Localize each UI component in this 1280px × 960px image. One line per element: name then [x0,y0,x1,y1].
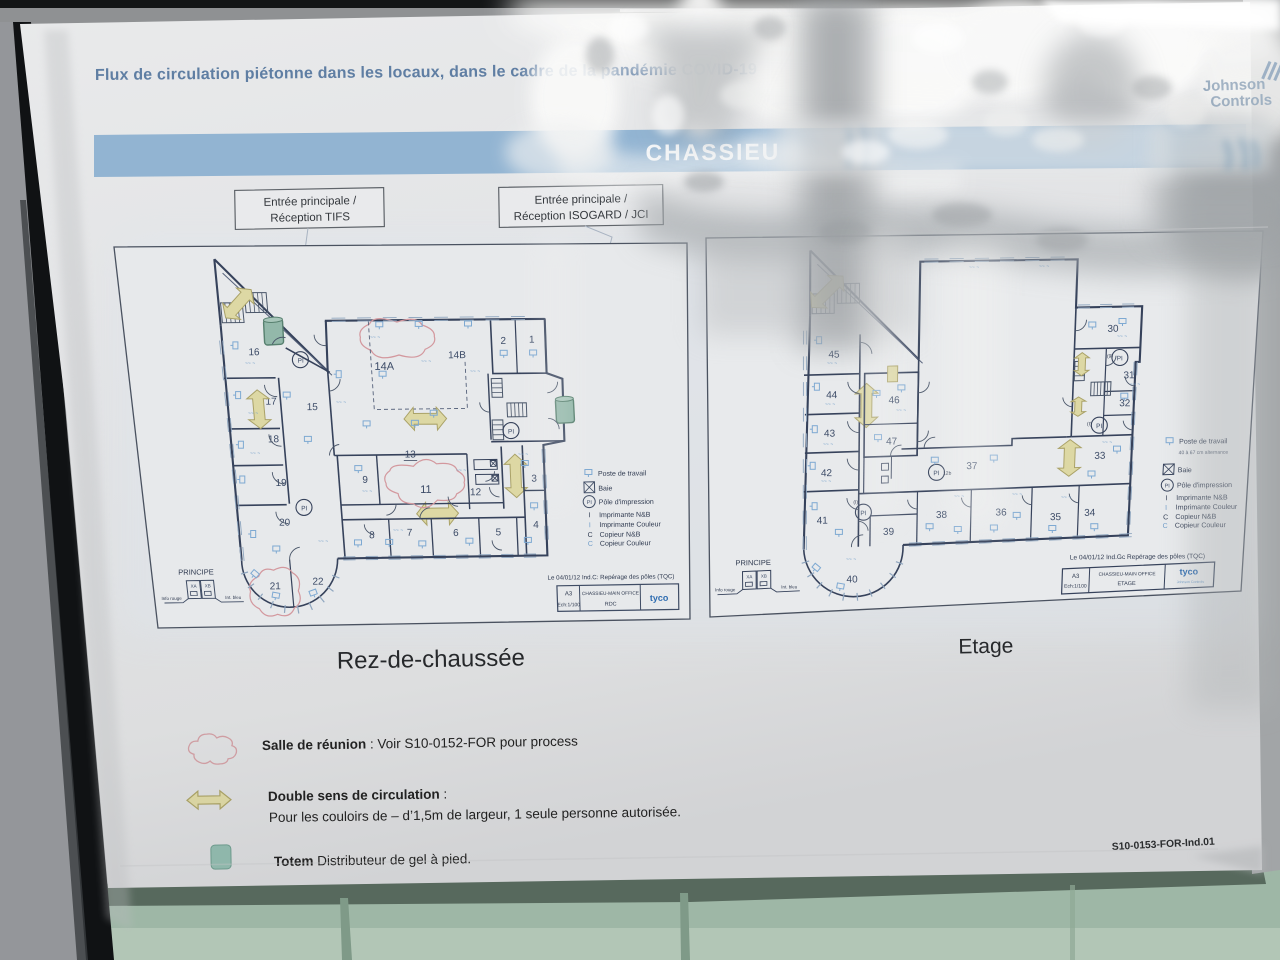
svg-text:1: 1 [529,335,535,346]
svg-text:6: 6 [453,528,459,539]
svg-text:Rez-de-chaussée: Rez-de-chaussée [337,644,526,674]
svg-text:PI: PI [587,500,593,506]
svg-text:33: 33 [1094,451,1106,462]
svg-text:C: C [1163,514,1168,521]
svg-text:PI: PI [1117,355,1123,362]
svg-text:PI: PI [298,358,304,365]
svg-text:C: C [588,532,593,539]
svg-text:~~ ~: ~~ ~ [846,557,856,563]
svg-text:~~ ~: ~~ ~ [370,335,380,341]
svg-text:~~ ~: ~~ ~ [336,400,346,406]
svg-text:21: 21 [270,581,282,592]
svg-text:Ech:1/100: Ech:1/100 [557,602,580,608]
svg-text:7: 7 [407,528,413,539]
svg-text:3: 3 [531,474,537,485]
svg-text:8: 8 [369,530,375,541]
svg-text:Réception ISOGARD / JCI: Réception ISOGARD / JCI [514,209,649,223]
svg-text:PI: PI [1096,423,1102,430]
svg-text:Copieur Couleur: Copieur Couleur [600,540,652,548]
svg-text:CHASSIEU-MAIN OFFICE: CHASSIEU-MAIN OFFICE [1099,571,1156,578]
svg-text:35: 35 [1050,512,1062,523]
svg-text:I: I [1165,505,1167,512]
svg-text:~~ ~: ~~ ~ [1012,492,1022,498]
svg-text:(I): (I) [1087,421,1092,427]
svg-text:~~ ~: ~~ ~ [827,361,837,367]
svg-text:Info rouge: Info rouge [161,596,182,601]
svg-text:Imprimante Couleur: Imprimante Couleur [599,521,661,529]
svg-text:43: 43 [824,429,836,440]
svg-text:45: 45 [828,350,840,361]
svg-text:C: C [1163,523,1168,530]
svg-text:I: I [589,512,591,519]
svg-text:~~ ~: ~~ ~ [825,402,835,408]
svg-text:Copieur N&B: Copieur N&B [600,531,641,538]
svg-text:44: 44 [826,390,838,401]
svg-text:15: 15 [307,402,319,413]
svg-text:PI: PI [933,470,939,477]
svg-text:(I): (I) [853,500,858,506]
svg-text:CHASSIEU-MAIN OFFICE: CHASSIEU-MAIN OFFICE [582,591,639,598]
svg-text:XA: XA [191,584,197,589]
svg-text:Imprimante N&B: Imprimante N&B [599,512,651,520]
svg-text:22: 22 [312,577,324,588]
svg-text:~~ ~: ~~ ~ [1061,495,1071,501]
svg-text:~~ ~: ~~ ~ [250,451,260,457]
svg-text:11: 11 [420,484,432,496]
svg-text:I: I [589,522,591,529]
svg-text:Baie: Baie [598,485,612,492]
svg-text:tyco: tyco [650,593,669,603]
svg-text:~~ ~: ~~ ~ [823,442,833,448]
svg-text:Entrée principale /: Entrée principale / [263,195,357,209]
svg-text:XA: XA [746,574,752,579]
svg-text:Int. bleu: Int. bleu [781,584,798,589]
svg-text:~~ ~: ~~ ~ [1130,382,1140,388]
svg-text:~~ ~: ~~ ~ [518,452,528,458]
svg-text:PRINCIPE: PRINCIPE [735,558,771,567]
svg-text:Ech:1/100: Ech:1/100 [1064,583,1087,589]
svg-text:Réception TIFS: Réception TIFS [270,211,350,225]
svg-text:ETAGE: ETAGE [1117,581,1136,587]
svg-text:(9): (9) [1107,354,1114,360]
svg-text:~~ ~: ~~ ~ [470,369,480,375]
svg-text:40: 40 [846,574,858,585]
svg-text:RDC: RDC [605,602,617,608]
svg-text:14B: 14B [448,350,466,361]
svg-text:Poste de travail: Poste de travail [598,470,647,478]
svg-text:PI: PI [508,429,514,436]
svg-text:I: I [1166,495,1168,502]
svg-text:Pôle d'impression: Pôle d'impression [599,499,654,507]
svg-text:A3: A3 [565,591,573,597]
svg-text:32: 32 [1119,398,1131,409]
svg-text:42: 42 [821,468,833,479]
svg-text:PI: PI [301,505,307,512]
svg-text:C: C [588,541,593,548]
svg-text:12: 12 [470,487,482,498]
svg-text:2: 2 [500,336,506,347]
svg-text:39: 39 [883,527,895,538]
svg-text:16: 16 [248,347,260,358]
svg-text:~~ ~: ~~ ~ [821,479,831,485]
svg-text:Le 04/01/12 Ind.C: Repérage de: Le 04/01/12 Ind.C: Repérage des pôles (T… [547,573,674,581]
svg-text:9: 9 [362,475,368,486]
svg-text:~~ ~: ~~ ~ [456,468,466,474]
svg-text:~~ ~: ~~ ~ [248,411,258,417]
svg-text:Controls: Controls [1210,92,1272,111]
svg-text:XB: XB [761,574,767,579]
svg-text:~~ ~: ~~ ~ [1102,440,1112,446]
svg-text:A3: A3 [1072,574,1080,580]
svg-text:~~ ~: ~~ ~ [245,361,255,367]
svg-text:41: 41 [817,516,829,527]
svg-text:~~ ~: ~~ ~ [1117,334,1127,340]
svg-text:Le 04/01/12 Ind.Gc Repérage de: Le 04/01/12 Ind.Gc Repérage des pôles (T… [1070,553,1205,561]
svg-text:~~ ~: ~~ ~ [362,489,372,495]
svg-text:~~ ~: ~~ ~ [393,528,403,534]
svg-text:4: 4 [533,520,539,531]
svg-text:Info rouge: Info rouge [715,587,736,592]
svg-text:PRINCIPE: PRINCIPE [178,567,214,576]
svg-text:~~ ~: ~~ ~ [318,539,328,545]
svg-text:Etage: Etage [958,635,1013,659]
svg-text:Totem Distributeur de gel à pi: Totem Distributeur de gel à pied. [274,851,471,869]
svg-text:Double sens de circulation :: Double sens de circulation : [268,786,448,804]
svg-text:5: 5 [496,527,502,538]
svg-text:XB: XB [205,583,211,588]
svg-text:Int. bleu: Int. bleu [225,595,242,600]
svg-text:34: 34 [1084,508,1096,519]
svg-text:PI: PI [1165,483,1171,489]
svg-text:~~ ~: ~~ ~ [421,359,431,365]
svg-text:Entrée principale /: Entrée principale / [534,193,628,207]
